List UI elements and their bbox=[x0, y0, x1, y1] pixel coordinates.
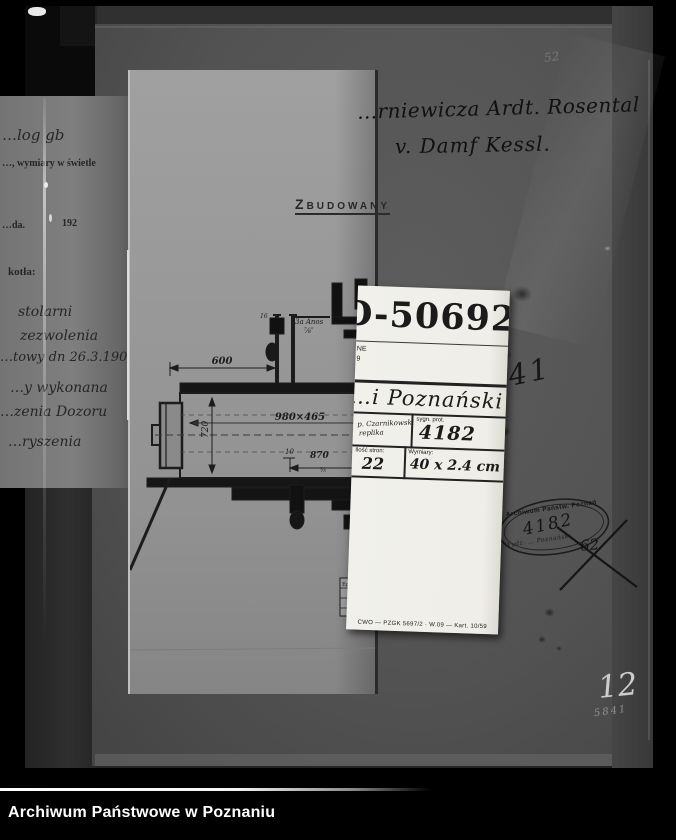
card-number-rule bbox=[356, 340, 508, 346]
anchor-label-1: 3a Anos bbox=[295, 318, 324, 326]
dim-16-label: 16 bbox=[260, 313, 268, 320]
ledger-page: …log gb …, wymiary w świetle …da. 192 ko… bbox=[0, 96, 132, 488]
dim-10-label: 10 bbox=[285, 448, 294, 456]
card-size-header: Wymiary: bbox=[408, 449, 433, 456]
ledger-handwriting: …log gb bbox=[2, 126, 64, 144]
light-speck bbox=[604, 246, 611, 251]
card-cell1-line2: replika bbox=[359, 429, 384, 438]
corner-mark: 52 bbox=[543, 49, 560, 65]
catalogue-card: D-50692 NE 9 …i Poznański p. Czarnikowsk… bbox=[346, 285, 510, 634]
dim-600-label: 600 bbox=[212, 356, 233, 367]
card-poznanski-line: …i Poznański bbox=[350, 384, 504, 413]
ledger-handwriting: …y wykonana bbox=[10, 380, 108, 396]
ledger-print-line: …da. bbox=[2, 220, 25, 231]
ink-spot bbox=[512, 286, 532, 302]
ledger-number: 192 bbox=[62, 218, 77, 229]
cross-out-mark bbox=[552, 512, 642, 597]
card-protocol-number: 4182 bbox=[419, 422, 477, 446]
ledger-print-line: …, wymiary w świetle bbox=[2, 158, 96, 169]
ink-spot bbox=[556, 646, 562, 651]
card-print-fragment: 9 bbox=[356, 355, 360, 362]
ledger-handwriting: …zenia Dozoru bbox=[0, 404, 107, 420]
ink-spot bbox=[544, 608, 555, 617]
scratch-streak bbox=[648, 60, 650, 740]
card-print-footer: CWO — PZGK 5697/2 · W.09 — Kart. 10/59 bbox=[346, 619, 498, 630]
card-print-fragment: NE bbox=[357, 345, 367, 352]
boiler-drawing: 600 3a Anos ⅞″ 16 980×465 720 10 870 ⅝ E… bbox=[130, 180, 375, 694]
anchor-label-2: ⅞″ bbox=[304, 327, 314, 335]
dim-870-label: 870 bbox=[310, 451, 330, 461]
card-cell1-line1: p. Czarnikowski bbox=[357, 419, 414, 429]
card-pages-value: 22 bbox=[362, 454, 385, 474]
sheet-edge-highlight bbox=[127, 250, 129, 420]
plate-corner-step bbox=[60, 6, 95, 46]
scratch-streak bbox=[43, 98, 46, 643]
dim-720-label: 720 bbox=[201, 421, 211, 438]
card-big-number: D-50692 bbox=[346, 293, 510, 340]
emulsion-flaw bbox=[28, 7, 46, 16]
frac-label: ⅝ bbox=[320, 467, 326, 474]
drawing-sheet: ZBUDOWANY bbox=[128, 70, 378, 694]
ledger-handwriting: zezwolenia bbox=[20, 328, 98, 344]
ledger-print-line: kotła: bbox=[8, 266, 36, 278]
document-top-edge bbox=[95, 26, 612, 28]
card-size-value: 40 x 2.4 cm bbox=[410, 456, 501, 475]
dust-speck bbox=[44, 182, 48, 188]
boiler-outline bbox=[130, 279, 375, 650]
dust-speck bbox=[49, 214, 52, 222]
handwritten-note-line2: v. Damf Kessl. bbox=[395, 132, 551, 159]
ink-spot bbox=[538, 636, 546, 643]
document-bottom-edge bbox=[95, 754, 612, 766]
bottom-divider-line bbox=[0, 788, 430, 791]
pencil-number-12: 12 bbox=[596, 666, 639, 706]
card-rule bbox=[351, 475, 503, 482]
archive-caption: Archiwum Państwowe w Poznaniu bbox=[8, 804, 275, 822]
card-cell-divider bbox=[403, 446, 406, 479]
archive-photo: …log gb …, wymiary w świetle …da. 192 ko… bbox=[0, 0, 676, 840]
dim-main-label: 980×465 bbox=[275, 412, 325, 423]
